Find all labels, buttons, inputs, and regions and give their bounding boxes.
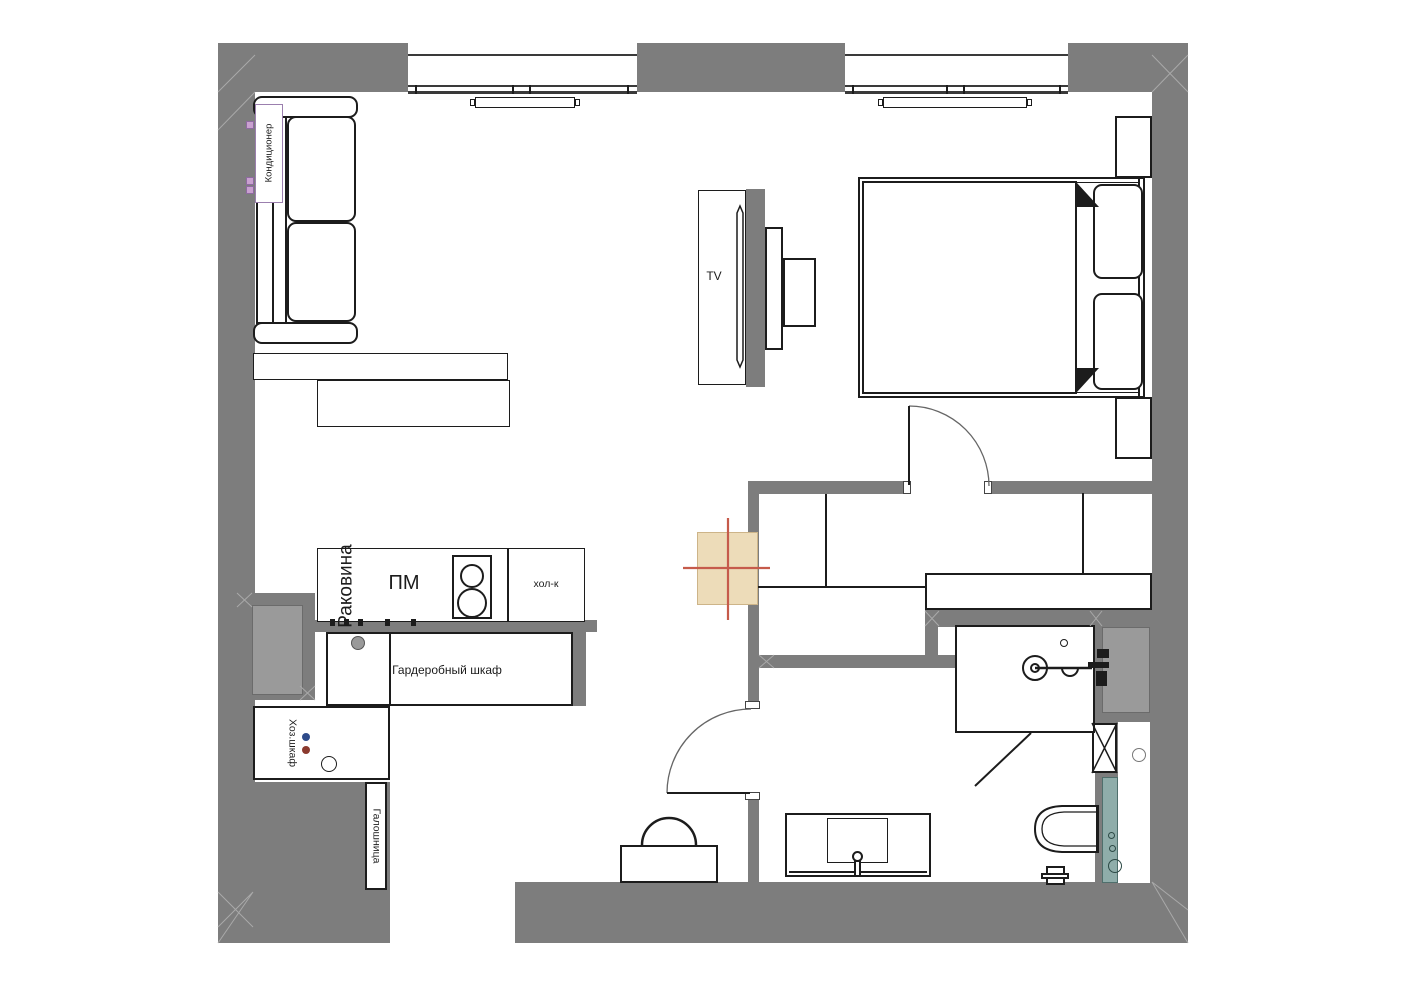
window-left-mullion-4	[627, 85, 629, 94]
dishwasher-label: ПМ	[388, 573, 419, 593]
window-left-mullion-1	[415, 85, 417, 94]
riser-pipe	[1132, 748, 1146, 762]
tv-label: TV	[706, 270, 721, 282]
basin-faucet-stem	[854, 860, 861, 877]
window-right-mullion-2	[946, 85, 948, 94]
island-bench	[253, 353, 508, 380]
utility-closet	[253, 706, 390, 780]
bath-door-jamb-top	[745, 701, 760, 709]
hall-closet-divider-2	[1082, 493, 1084, 574]
tv-partition-wall	[746, 189, 765, 387]
hall-shelf	[925, 573, 1152, 610]
nightstand-bottom	[1115, 397, 1152, 459]
window-right-mullion-3	[963, 85, 965, 94]
plumbing-tick-3	[358, 619, 363, 626]
shower-point	[1060, 639, 1068, 647]
radiator-left-cap-b	[575, 99, 580, 106]
media-console-2	[783, 258, 816, 327]
towel-rail-pipe-1	[1108, 832, 1115, 839]
sofa-seat-cushion-1	[287, 116, 356, 222]
shower-door-line	[975, 733, 1031, 786]
window-left-mullion-3	[529, 85, 531, 94]
plumbing-tick-1	[330, 619, 335, 626]
burner-small	[460, 564, 484, 588]
bed-blanket	[862, 181, 1077, 394]
bedroom-door-jamb-right	[984, 481, 992, 494]
entry-bench-back	[642, 818, 696, 845]
wall-right	[1152, 92, 1188, 882]
nightstand-top	[1115, 116, 1152, 178]
island-table	[317, 380, 510, 427]
wall-top-middle	[637, 43, 845, 92]
wall-top-right	[1068, 43, 1188, 92]
floor-plan: Кондиционер TV Раковина ПМ хол-к Гардеро…	[0, 0, 1413, 1000]
pillow-2	[1093, 293, 1143, 390]
tv-unit	[698, 190, 746, 385]
window-left-glass-line	[408, 85, 637, 87]
shower-drain-inner	[1030, 663, 1040, 673]
riser-niche	[1118, 722, 1150, 883]
fridge-label: хол-к	[534, 579, 559, 590]
pillow-1	[1093, 184, 1143, 279]
window-left	[408, 54, 637, 92]
utility-closet-label: Хоз.шкаф	[287, 719, 298, 767]
duct-bathroom	[1102, 627, 1150, 713]
window-right-glass-line	[845, 85, 1068, 87]
utility-drain-circle	[321, 756, 337, 772]
hall-closet-divider-1	[825, 494, 827, 587]
shower-enclosure	[955, 625, 1095, 733]
sink-label: Раковина	[337, 544, 356, 627]
bath-door-jamb-bottom	[745, 792, 760, 800]
wall-corridor-top-left	[748, 481, 904, 494]
window-right	[845, 54, 1068, 92]
hall-closet-front	[758, 586, 925, 588]
window-right-sill-line	[845, 91, 1068, 94]
radiator-left-cap-a	[470, 99, 475, 106]
window-left-mullion-2	[512, 85, 514, 94]
shoe-cabinet-label: Галошница	[371, 809, 382, 864]
radiator-left	[475, 97, 575, 108]
air-conditioner-label: Кондиционер	[264, 124, 274, 183]
wardrobe-label: Гардеробный шкаф	[392, 664, 502, 676]
wall-wardrobe-right	[573, 632, 586, 706]
window-left-sill-line	[408, 91, 637, 94]
sofa-armrest-bottom	[253, 322, 358, 344]
bathroom-door	[667, 709, 751, 793]
ac-socket-3	[246, 186, 254, 194]
burner-large	[457, 588, 487, 618]
ac-socket-1	[246, 121, 254, 129]
floor-drain-bar	[1041, 873, 1069, 879]
toilet	[1035, 806, 1098, 852]
bedroom-door-jamb-left	[903, 481, 911, 494]
utility-water-drain-dot	[302, 746, 310, 754]
wall-top-left	[218, 43, 408, 92]
plumbing-tick-5	[411, 619, 416, 626]
wardrobe-divider	[389, 632, 391, 706]
bedroom-door	[909, 406, 989, 486]
sofa-seat-cushion-2	[287, 222, 356, 322]
duct-kitchen	[252, 605, 303, 695]
vent-shaft	[697, 532, 758, 605]
towel-rail-pipe-2	[1109, 845, 1116, 852]
sink-drain-point	[351, 636, 365, 650]
plumbing-tick-4	[385, 619, 390, 626]
entry-bench	[620, 845, 718, 883]
vent-box	[1092, 723, 1117, 773]
wall-hall-left-lower	[748, 800, 759, 882]
radiator-right-cap-a	[878, 99, 883, 106]
radiator-right	[883, 97, 1027, 108]
ac-socket-2	[246, 177, 254, 185]
window-right-mullion-4	[1059, 85, 1061, 94]
towel-rail-pipe-3	[1108, 859, 1122, 873]
window-right-mullion-1	[852, 85, 854, 94]
utility-water-supply-dot	[302, 733, 310, 741]
wall-bottom	[515, 882, 1188, 943]
radiator-right-cap-b	[1027, 99, 1032, 106]
wall-corridor-top-right	[991, 481, 1152, 494]
media-console-1	[765, 227, 783, 350]
